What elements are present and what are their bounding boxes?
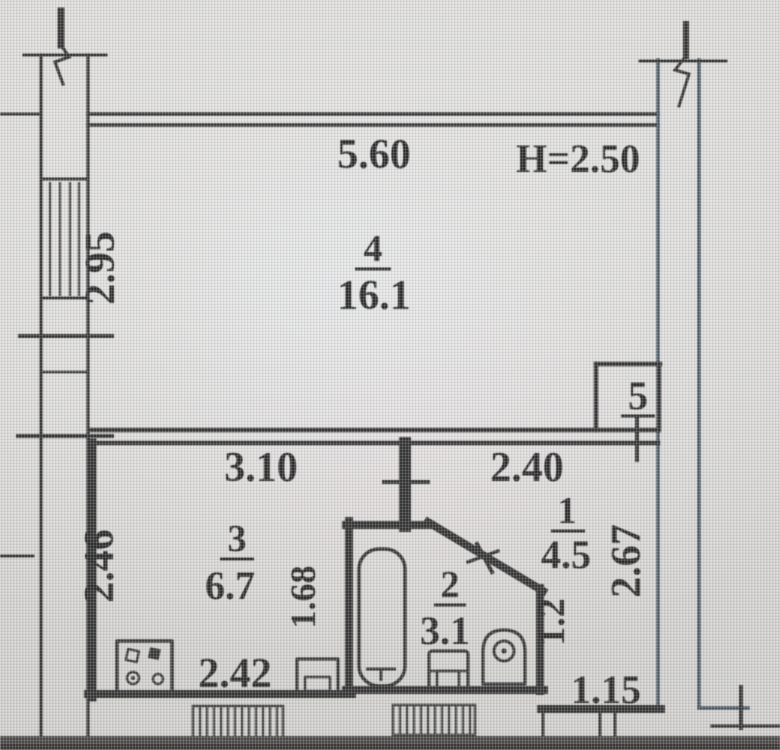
burner-1	[126, 649, 139, 662]
hall-bottom-walls	[541, 709, 661, 740]
dim-hall-lower-depth: 1.2	[531, 598, 573, 646]
window-bottom-bathroom	[393, 705, 475, 735]
washbasin-icon	[483, 630, 525, 684]
sink-basin	[305, 677, 330, 691]
toilet-icon	[429, 651, 468, 690]
window-hatch	[200, 706, 277, 738]
dim-kitchen-bottom-width: 2.42	[198, 651, 272, 697]
room-2-area: 3.1	[420, 608, 470, 653]
bathtub-drain	[366, 669, 396, 681]
dim-room4-depth: 2.95	[78, 231, 124, 305]
room-2-number: 2	[441, 564, 460, 606]
kitchen-hall-partition	[384, 443, 428, 526]
room-1-area: 4.5	[541, 532, 591, 577]
bathtub-icon	[359, 549, 405, 686]
bathtub-outline	[359, 549, 405, 686]
wall-break-icon	[55, 11, 69, 84]
dim-room4-width: 5.60	[337, 132, 411, 178]
stove-icon	[117, 641, 172, 693]
dim-ceiling-height: H=2.50	[516, 136, 640, 181]
kitchen-sink-icon	[297, 659, 338, 695]
room-4-number: 4	[364, 228, 383, 270]
break-zigzag	[675, 56, 689, 106]
break-zigzag	[55, 45, 69, 84]
window-hatch	[50, 182, 79, 296]
dim-kitchen-depth: 2.46	[77, 529, 123, 603]
room-4-area: 16.1	[337, 273, 411, 319]
photo-bottom-edge	[0, 736, 780, 750]
dim-kitchen-lower-depth: 1.68	[283, 566, 323, 629]
dim-hall-right-depth: 2.67	[604, 524, 650, 598]
window-hatch	[400, 705, 470, 735]
floor-plan-photo: 5.60 H=2.50 2.95 3.10 2.40 2.46 1.68 2.4…	[0, 0, 780, 750]
dim-hall-bottom-width: 1.15	[571, 667, 641, 712]
dimension-labels: 5.60 H=2.50 2.95 3.10 2.40 2.46 1.68 2.4…	[77, 132, 650, 712]
window-bottom-kitchen	[193, 706, 283, 738]
burner-4	[153, 674, 163, 684]
dim-kitchen-width: 3.10	[224, 445, 298, 491]
room-1-number: 1	[558, 490, 577, 532]
washbasin-outline	[483, 630, 525, 684]
room-5-number: 5	[628, 373, 648, 418]
stove-outline	[117, 641, 172, 693]
room-labels: 4 16.1 5 3 6.7 2 3.1 1 4.5	[205, 228, 655, 653]
wall-break-icon	[675, 24, 689, 106]
burner-2	[148, 647, 161, 660]
room-3-number: 3	[228, 518, 247, 560]
top-exterior-wall	[88, 114, 658, 125]
room-3-area: 6.7	[205, 563, 255, 608]
interior-wall-room4	[90, 419, 658, 460]
dim-hall-width: 2.40	[490, 445, 564, 491]
burner-3-dot	[131, 676, 135, 680]
washbasin-drain	[501, 648, 506, 653]
edge-band-dark	[0, 744, 780, 750]
floor-plan: 5.60 H=2.50 2.95 3.10 2.40 2.46 1.68 2.4…	[0, 0, 780, 750]
